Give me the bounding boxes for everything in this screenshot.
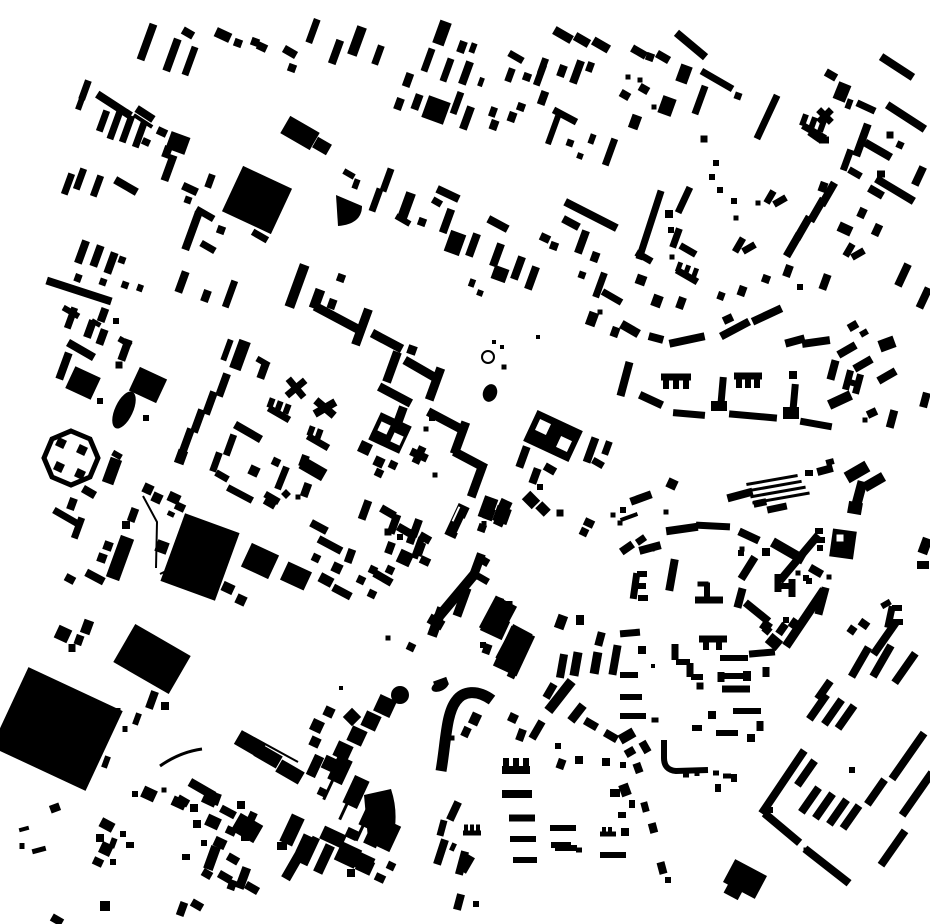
building-footprint	[522, 72, 532, 82]
building-footprint	[90, 174, 104, 197]
building-footprint	[384, 541, 396, 555]
building-footprint	[110, 859, 116, 865]
building-footprint	[844, 461, 871, 483]
building-footprint	[876, 368, 897, 385]
building-footprint	[126, 842, 134, 848]
building-footprint	[720, 655, 748, 661]
building-footprint	[765, 633, 783, 651]
building-footprint	[899, 770, 930, 817]
building-footprint	[222, 166, 292, 234]
building-footprint	[330, 561, 343, 574]
building-footprint	[877, 171, 885, 178]
building-footprint	[783, 232, 803, 259]
building-footprint	[590, 251, 601, 263]
building-footprint	[602, 138, 618, 167]
building-footprint	[429, 415, 435, 421]
building-footprint	[536, 335, 540, 339]
building-footprint	[618, 728, 637, 745]
building-footprint	[507, 50, 524, 64]
building-footprint	[356, 575, 367, 586]
building-footprint	[650, 294, 664, 309]
building-footprint	[61, 172, 75, 195]
building-footprint	[555, 743, 561, 749]
building-footprint	[678, 242, 697, 257]
building-footprint	[657, 95, 676, 117]
building-footprint	[523, 758, 529, 768]
building-footprint-ellipse	[107, 388, 140, 432]
building-footprint	[650, 547, 655, 552]
building-footprint	[782, 264, 794, 278]
building-footprint	[827, 390, 853, 409]
building-footprint	[122, 521, 130, 529]
building-footprint	[638, 646, 646, 654]
building-footprint	[729, 410, 777, 421]
building-footprint	[608, 645, 621, 676]
building-footprint	[816, 464, 834, 476]
building-footprint	[545, 115, 561, 145]
building-footprint	[866, 407, 878, 418]
building-footprint	[723, 774, 731, 779]
building-footprint	[503, 758, 509, 768]
building-footprint	[280, 561, 312, 590]
building-footprint	[640, 801, 649, 812]
building-footprint	[692, 85, 709, 116]
building-footprint	[734, 216, 739, 221]
building-footprint	[535, 501, 551, 517]
building-footprint	[141, 137, 151, 147]
building-footprint	[369, 188, 384, 213]
building-footprint	[516, 102, 526, 112]
building-footprint	[757, 721, 764, 731]
building-footprint	[285, 263, 310, 309]
building-footprint	[397, 534, 403, 540]
building-footprint	[300, 482, 312, 498]
building-footprint	[368, 412, 411, 454]
building-footprint	[201, 840, 207, 846]
building-footprint	[89, 244, 104, 267]
building-footprint	[374, 468, 385, 479]
building-footprint	[281, 489, 291, 499]
building-footprint	[476, 825, 480, 832]
building-footprint	[836, 342, 857, 359]
building-footprint	[708, 711, 716, 719]
building-footprint	[119, 115, 135, 144]
building-footprint	[470, 825, 474, 832]
building-footprint	[917, 561, 929, 569]
building-footprint	[797, 284, 803, 290]
building-footprint	[287, 63, 297, 73]
building-footprint	[488, 106, 498, 118]
building-footprint	[576, 848, 582, 853]
building-footprint	[204, 173, 215, 189]
building-footprint-path	[44, 431, 98, 485]
building-footprint	[802, 846, 851, 887]
building-footprint	[97, 398, 103, 404]
building-footprint	[460, 726, 471, 738]
building-footprint	[351, 178, 360, 189]
building-footprint	[275, 759, 305, 784]
building-footprint	[569, 59, 585, 84]
building-footprint	[783, 407, 799, 419]
building-footprint	[120, 831, 126, 837]
building-footprint	[75, 97, 85, 110]
building-footprint	[52, 507, 80, 527]
building-footprint	[617, 361, 634, 397]
building-footprint	[533, 63, 547, 86]
building-footprint	[561, 215, 581, 231]
building-footprint	[464, 825, 468, 832]
building-footprint	[296, 495, 301, 500]
building-footprint	[226, 484, 254, 503]
building-footprint	[214, 469, 230, 482]
building-footprint	[802, 336, 831, 348]
building-footprint	[704, 583, 710, 598]
building-footprint	[358, 499, 372, 521]
building-footprint	[274, 466, 289, 491]
building-footprint	[573, 32, 591, 48]
building-footprint	[756, 201, 761, 206]
building-footprint	[618, 783, 632, 798]
building-footprint	[244, 881, 260, 895]
building-footprint	[524, 265, 540, 290]
building-footprint	[81, 485, 97, 499]
building-footprint	[433, 473, 438, 478]
building-footprint	[53, 461, 65, 473]
building-footprint	[630, 45, 648, 60]
building-footprint	[114, 708, 121, 716]
building-footprint	[179, 427, 195, 452]
building-footprint	[608, 827, 612, 833]
building-footprint	[762, 810, 802, 846]
building-footprint	[523, 410, 583, 462]
building-footprint	[433, 838, 449, 865]
building-footprint	[648, 332, 665, 344]
building-footprint	[683, 771, 689, 778]
building-footprint	[500, 345, 504, 349]
building-footprint	[796, 571, 801, 576]
building-footprint	[393, 97, 405, 111]
building-footprint	[911, 165, 927, 187]
building-footprint	[885, 101, 927, 132]
building-footprint	[64, 573, 77, 585]
building-footprint	[864, 777, 888, 806]
building-footprint	[576, 152, 584, 160]
building-footprint	[673, 379, 679, 389]
building-footprint	[274, 400, 283, 411]
building-footprint	[406, 642, 417, 653]
building-footprint	[99, 278, 108, 287]
building-footprint	[887, 132, 894, 139]
building-footprint	[132, 712, 142, 725]
building-footprint	[101, 755, 111, 768]
building-footprint	[805, 470, 813, 476]
building-footprint	[113, 318, 119, 324]
building-footprint	[282, 45, 298, 59]
building-footprint	[450, 91, 464, 115]
building-footprint	[585, 61, 595, 73]
building-footprint	[396, 549, 415, 568]
building-footprint	[331, 584, 352, 600]
building-footprint	[502, 790, 532, 798]
building-footprint	[808, 116, 818, 129]
building-footprint	[620, 507, 626, 513]
building-footprint	[344, 548, 356, 564]
building-footprint	[150, 491, 163, 504]
building-footprint	[367, 589, 378, 600]
building-footprint	[629, 800, 635, 808]
building-footprint	[655, 50, 671, 64]
building-footprint	[674, 30, 708, 61]
building-footprint	[136, 284, 144, 293]
building-footprint	[266, 397, 275, 408]
building-footprint	[675, 296, 687, 310]
building-footprint	[309, 718, 325, 734]
building-footprint	[889, 731, 928, 781]
building-footprint	[98, 817, 115, 832]
building-footprint	[827, 359, 840, 380]
building-footprint	[372, 455, 385, 468]
building-footprint	[234, 593, 247, 606]
building-footprint	[886, 409, 898, 428]
building-footprint	[761, 274, 771, 284]
building-footprint	[754, 378, 760, 388]
building-footprint	[271, 457, 282, 468]
building-footprint	[377, 383, 413, 408]
building-footprint	[664, 510, 669, 515]
building-footprint	[510, 255, 526, 280]
building-footprint	[635, 534, 647, 545]
building-footprint	[357, 440, 373, 456]
building-footprint	[652, 105, 657, 110]
building-footprint	[161, 702, 169, 710]
building-footprint	[847, 501, 863, 515]
building-footprint	[743, 671, 751, 681]
building-footprint	[486, 215, 509, 232]
building-footprint	[539, 232, 551, 243]
building-footprint	[20, 843, 25, 849]
building-footprint	[74, 239, 90, 264]
building-footprint	[583, 517, 595, 528]
building-footprint	[825, 458, 834, 466]
building-footprint	[317, 572, 334, 587]
building-footprint	[695, 597, 723, 604]
map-canvas	[0, 0, 930, 924]
building-footprint	[444, 230, 467, 256]
building-footprint	[432, 20, 451, 47]
building-footprint	[209, 451, 222, 472]
building-footprint	[143, 415, 149, 421]
building-footprint	[766, 502, 787, 513]
building-footprint	[374, 872, 386, 883]
building-footprint	[665, 559, 678, 592]
building-footprint	[620, 713, 646, 719]
building-footprint	[459, 105, 475, 130]
building-footprint	[19, 826, 30, 832]
building-footprint	[0, 667, 123, 791]
building-footprint	[467, 463, 487, 498]
building-footprint	[767, 807, 773, 813]
building-footprint	[749, 648, 776, 657]
building-footprint	[736, 378, 742, 388]
courtyard-cutout	[837, 535, 844, 542]
building-footprint	[619, 89, 632, 101]
building-footprint	[449, 842, 457, 851]
building-footprint	[106, 535, 134, 581]
building-footprint	[204, 814, 222, 831]
building-footprint	[722, 686, 750, 693]
building-footprint	[554, 614, 568, 631]
building-footprint	[610, 789, 620, 797]
building-footprint	[566, 139, 575, 148]
building-footprint	[574, 229, 590, 254]
building-footprint	[223, 433, 237, 456]
building-footprint	[578, 271, 587, 280]
building-footprint	[233, 421, 263, 443]
building-footprint	[747, 734, 755, 742]
building-footprint	[543, 463, 557, 476]
building-footprint	[167, 510, 175, 517]
building-footprint	[385, 565, 396, 576]
building-footprint	[894, 262, 911, 287]
building-footprint	[772, 194, 788, 207]
building-footprint-path	[336, 195, 362, 226]
building-footprint	[665, 210, 673, 218]
building-footprint	[95, 91, 133, 119]
building-footprint	[468, 278, 476, 288]
building-footprint	[665, 477, 678, 490]
building-footprint-ellipse	[480, 382, 499, 404]
building-footprint	[507, 712, 519, 724]
building-footprint	[73, 167, 87, 190]
building-footprint	[619, 541, 635, 556]
building-footprint	[80, 619, 94, 636]
building-footprint	[699, 636, 727, 643]
building-footprint	[829, 528, 857, 559]
building-footprint	[590, 651, 603, 674]
building-footprint	[691, 267, 699, 278]
building-footprint	[626, 75, 631, 80]
building-footprint	[859, 328, 869, 337]
building-footprint	[620, 672, 638, 678]
building-footprint-path	[143, 496, 157, 568]
building-footprint	[440, 58, 455, 83]
building-footprint	[504, 67, 515, 83]
building-footprint	[188, 778, 217, 800]
building-footprint	[220, 339, 233, 362]
building-footprint	[551, 842, 571, 848]
building-footprint	[313, 843, 335, 874]
building-footprint	[380, 168, 395, 193]
building-footprint	[162, 38, 181, 73]
building-footprint	[672, 644, 679, 660]
building-footprint	[620, 762, 626, 768]
building-footprint	[346, 725, 367, 746]
building-footprint	[181, 27, 195, 40]
building-footprint	[638, 83, 651, 95]
building-footprint	[406, 344, 418, 356]
building-footprint	[636, 190, 665, 261]
building-footprint	[737, 285, 748, 297]
building-footprint	[733, 708, 761, 714]
building-footprint	[638, 78, 643, 83]
building-footprint	[237, 801, 245, 809]
building-footprint-path	[664, 740, 708, 771]
building-footprint	[216, 225, 226, 235]
building-footprint	[417, 217, 427, 227]
building-footprint	[855, 100, 876, 115]
building-footprint	[537, 484, 543, 490]
building-footprint	[731, 198, 737, 204]
building-footprint	[668, 227, 674, 233]
building-footprint	[200, 289, 212, 303]
building-footprint	[96, 109, 110, 132]
building-footprint	[919, 392, 930, 409]
building-footprint	[794, 760, 799, 765]
building-footprint	[598, 310, 603, 315]
building-footprint	[444, 503, 469, 539]
building-footprint	[537, 90, 549, 106]
building-footprint	[675, 186, 693, 214]
building-footprint	[846, 624, 857, 635]
building-footprint	[529, 467, 542, 485]
building-footprint	[468, 42, 477, 53]
building-footprint	[763, 667, 770, 677]
building-footprint	[848, 645, 872, 678]
building-footprint	[648, 822, 658, 834]
building-footprint	[709, 174, 715, 180]
building-footprint	[628, 114, 642, 131]
building-footprint	[382, 350, 401, 383]
building-footprint	[336, 273, 346, 283]
building-footprint	[621, 828, 629, 836]
building-footprint	[576, 615, 584, 625]
building-footprint	[121, 281, 130, 290]
building-footprint	[754, 94, 781, 140]
building-footprint	[141, 482, 154, 495]
building-footprint	[118, 256, 127, 265]
building-footprint	[666, 523, 699, 535]
building-footprint	[695, 770, 700, 776]
building-footprint	[591, 37, 611, 54]
building-footprint	[489, 242, 505, 267]
building-footprint	[446, 800, 462, 822]
building-footprint	[386, 861, 397, 872]
building-footprint	[877, 336, 896, 353]
building-footprint	[123, 726, 128, 732]
building-footprint	[277, 842, 287, 850]
building-footprint	[738, 555, 759, 581]
building-footprint	[50, 914, 64, 924]
building-footprint	[892, 605, 902, 611]
building-footprint	[145, 690, 159, 710]
building-footprint	[226, 853, 240, 866]
building-footprint	[629, 490, 652, 505]
building-footprint	[103, 251, 118, 274]
building-footprint	[603, 729, 619, 743]
building-footprint	[92, 856, 104, 867]
building-footprint	[600, 852, 626, 858]
building-footprint	[102, 540, 114, 552]
building-footprint	[863, 418, 868, 423]
building-footprint	[638, 583, 646, 589]
building-footprint-path	[160, 749, 202, 766]
building-footprint	[314, 428, 323, 439]
building-footprint	[311, 553, 322, 564]
building-footprint	[66, 497, 78, 511]
building-footprint	[515, 445, 530, 468]
building-footprint	[665, 877, 671, 883]
building-footprint	[863, 139, 893, 161]
